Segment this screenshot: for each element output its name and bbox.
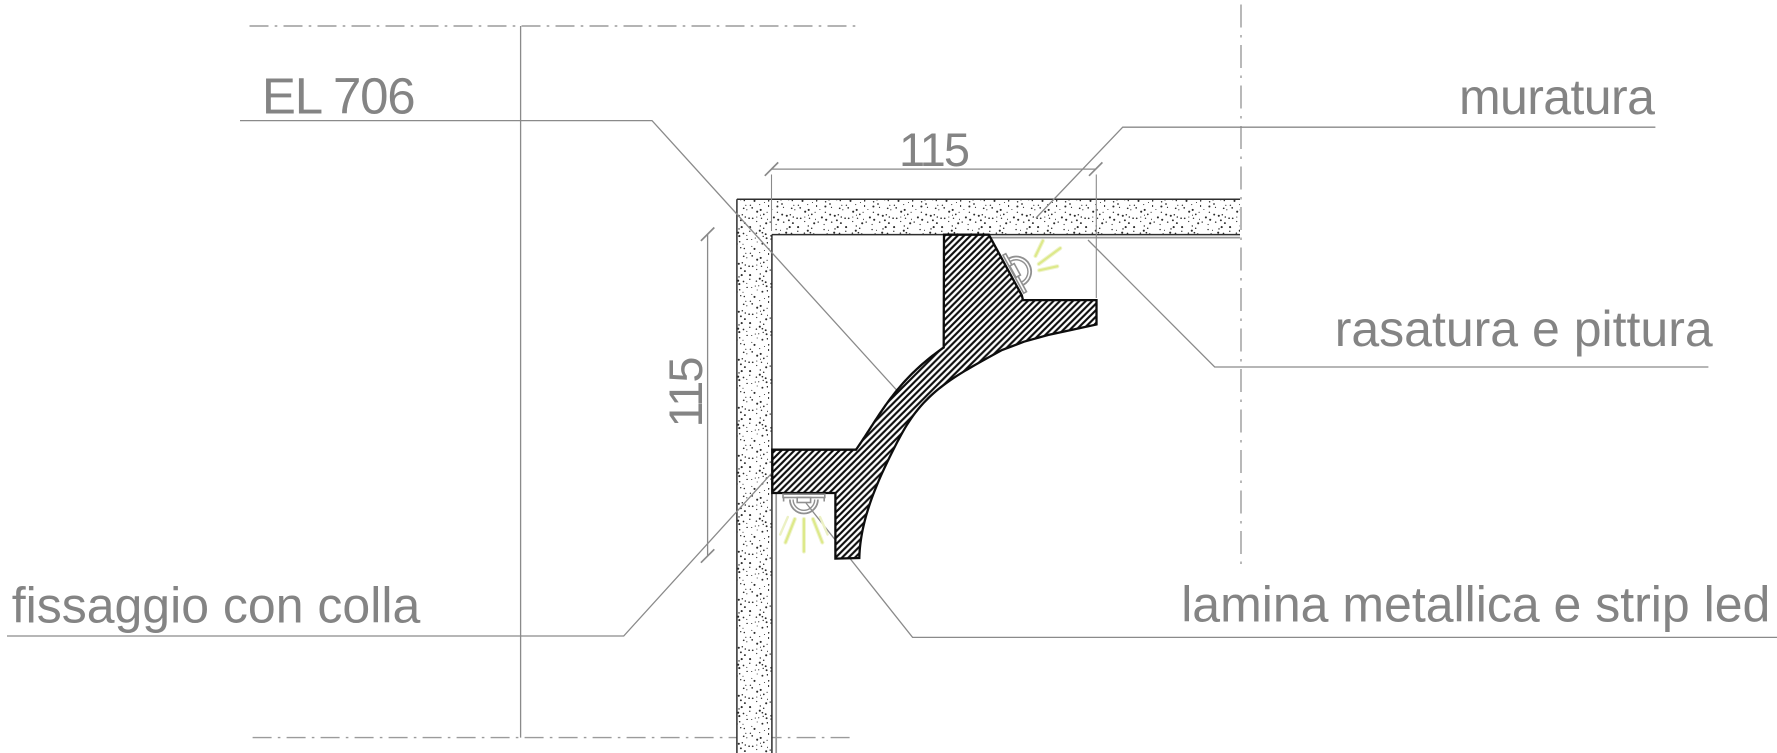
svg-text:115: 115 bbox=[899, 123, 969, 176]
svg-text:EL 706: EL 706 bbox=[262, 68, 415, 125]
svg-text:115: 115 bbox=[659, 358, 712, 428]
svg-text:muratura: muratura bbox=[1459, 69, 1655, 125]
svg-text:rasatura e pittura: rasatura e pittura bbox=[1335, 301, 1713, 357]
svg-text:lamina metallica e strip led: lamina metallica e strip led bbox=[1181, 577, 1770, 633]
svg-text:fissaggio con colla: fissaggio con colla bbox=[12, 578, 421, 634]
